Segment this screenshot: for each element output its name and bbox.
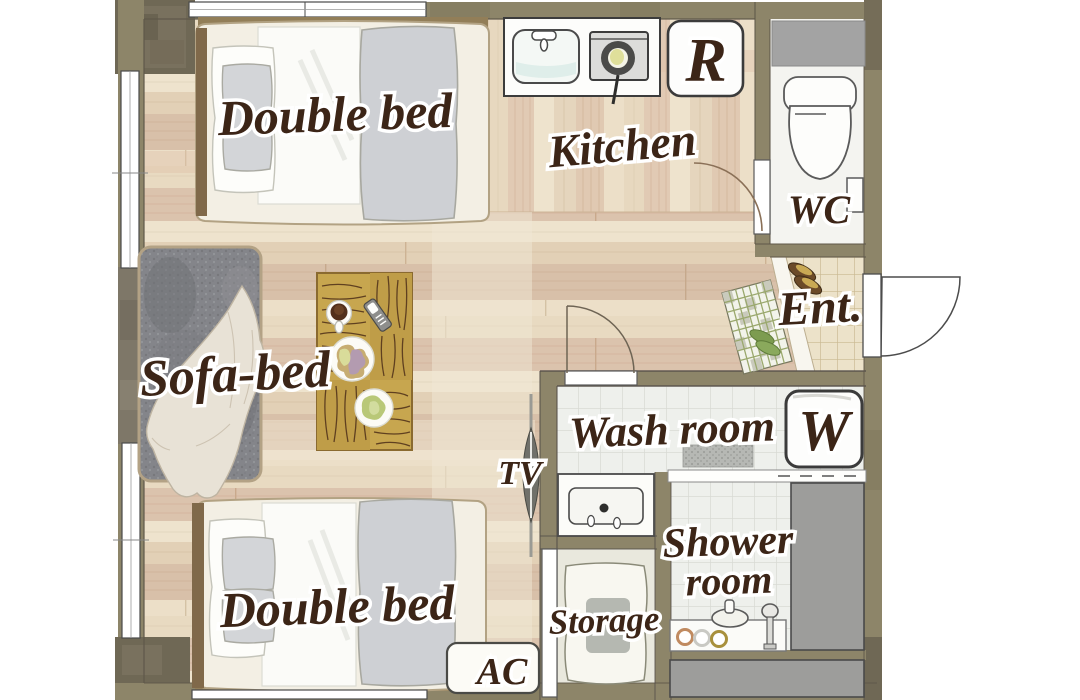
svg-text:Storage: Storage (548, 599, 660, 642)
svg-text:Ent.: Ent. (776, 279, 864, 336)
svg-text:R: R (684, 27, 726, 95)
svg-text:Double bed: Double bed (218, 574, 457, 638)
svg-text:Wash room: Wash room (568, 401, 775, 457)
svg-text:Double bed: Double bed (216, 82, 455, 146)
svg-text:AC: AC (475, 651, 528, 693)
svg-text:WC: WC (788, 187, 852, 232)
svg-text:TV: TV (498, 455, 544, 492)
svg-text:Sofa-bed: Sofa-bed (138, 341, 332, 408)
svg-text:room: room (685, 557, 773, 605)
svg-text:W: W (798, 398, 853, 463)
